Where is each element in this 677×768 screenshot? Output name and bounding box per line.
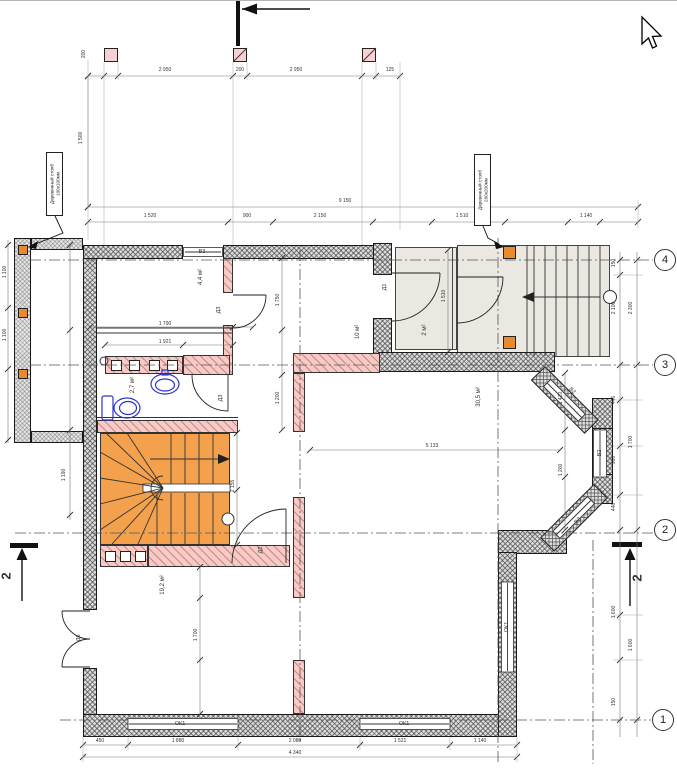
room-area-label: 10 м² [355, 325, 361, 339]
partition-hall-south [293, 353, 380, 373]
window-label-v3: В3 [199, 249, 206, 255]
callout-text: 100х100мм [55, 172, 60, 196]
floor-plan-drawing: 4,4 м² 10 м² 2,7 м² 2 м² 30,5 м² 19,2 м²… [0, 0, 677, 768]
cabinet-box [105, 551, 116, 562]
cabinet-box [167, 360, 178, 371]
entry-post-south [503, 336, 516, 349]
cabinet-box [111, 360, 122, 371]
section-number-right: 2 [630, 574, 645, 581]
dim-label: 1 510 [456, 213, 469, 219]
wall-entry-south [378, 352, 555, 372]
partition-lower-vertical [293, 660, 305, 714]
wall-bottom [83, 714, 517, 737]
plan-linework [0, 0, 677, 768]
cabinet-box [129, 360, 140, 371]
dim-label: 200 [81, 50, 87, 58]
stair-cabinet-row [100, 545, 148, 567]
door-label-d6: Д6 [76, 635, 82, 642]
partition-upper-a [223, 258, 233, 293]
porch-band-bottom [31, 431, 83, 443]
wall-vestibule-west-lower [373, 318, 392, 354]
dim-label: 446 [611, 503, 617, 511]
page-edge-line [0, 0, 677, 1]
dim-label: 900 [243, 213, 251, 219]
cabinet-box [149, 360, 160, 371]
porch-band-vertical [14, 238, 31, 443]
porch-post-2 [18, 308, 28, 318]
grid-label: 4 [662, 254, 668, 266]
window-label-v2-east: В2 [597, 450, 603, 457]
partition-bath-north [183, 355, 230, 375]
wall-top-left [83, 245, 183, 259]
dim-label: 446 [611, 396, 617, 404]
room-area-label: 4,4 м² [198, 269, 204, 285]
grid-bubble-3: 3 [654, 354, 676, 376]
dim-label: 1 190 [61, 469, 67, 482]
wall-left-upper [83, 258, 97, 610]
entry-porch-floor [457, 245, 610, 357]
door-label-d1: Д1 [382, 284, 388, 291]
dim-label: 4 340 [289, 750, 302, 756]
dim-label: 9 150 [339, 198, 352, 204]
dim-label: 200 [236, 67, 244, 73]
section-number-left: 2 [0, 572, 14, 579]
dim-label: 1 200 [275, 392, 281, 405]
post-top-3 [362, 48, 376, 62]
door-d3-bathroom [192, 375, 228, 411]
dim-label: 150 [611, 698, 617, 706]
section-arrow-left [17, 548, 28, 601]
dim-label: 1 510 [441, 290, 447, 303]
cabinet-box [135, 551, 146, 562]
dim-label: 1 100 [2, 266, 8, 279]
entry-post-north [503, 246, 516, 259]
door-label-d3b: Д3 [218, 395, 224, 402]
grid-label: 3 [662, 359, 668, 371]
toilet [102, 396, 140, 420]
wall-top-mid [223, 245, 375, 259]
grid-label: 2 [662, 524, 668, 536]
dim-label: 450 [96, 738, 104, 744]
grid-label: 1 [660, 714, 666, 726]
dim-label: 1 520 [144, 213, 157, 219]
window-label-ok1-b: ОК1 [399, 721, 410, 727]
dim-label: 2 150 [314, 213, 327, 219]
dim-label: 5 133 [426, 443, 439, 449]
window-label-ok1-c: ОК1 [504, 622, 510, 633]
dimension-linework [0, 0, 677, 768]
dim-label: 1 880 [172, 738, 185, 744]
mouse-cursor[interactable] [642, 17, 661, 48]
partition-mid-vertical-b [293, 373, 305, 432]
dim-label: 1 790 [159, 321, 172, 327]
window-v2-lower-diagonal [552, 496, 595, 539]
room-area-label: 2 м² [422, 324, 428, 335]
wall-vestibule-west-upper [373, 243, 392, 275]
dim-label: 1 140 [580, 213, 593, 219]
post-callout-right: Деревянный столб 200х200мм [474, 154, 491, 226]
section-cut-bar-right [612, 542, 642, 547]
section-cut-bar-top [236, 0, 240, 46]
dim-label: 125 [386, 67, 394, 73]
partition-stair-south [148, 545, 290, 567]
post-top-1 [104, 48, 118, 62]
partition-mid-vertical-a [293, 497, 305, 598]
dim-label: 1 750 [275, 294, 281, 307]
partition-stair-north [97, 420, 238, 433]
dim-label: 1 140 [474, 738, 487, 744]
room-area-label: 30,5 м² [476, 387, 482, 406]
callout-text: 200х200мм [483, 178, 488, 202]
dim-label: 2 155 [230, 480, 236, 493]
wall-bay-diagonal-lower [540, 484, 608, 552]
porch-band-top [31, 238, 83, 250]
dim-label: 1 200 [558, 464, 564, 477]
door-d3-upper [233, 295, 266, 328]
dim-label: 1 100 [2, 329, 8, 342]
grid-bubble-1: 1 [652, 709, 674, 731]
dim-label: 1 420 [558, 392, 564, 405]
porch-post-1 [18, 245, 28, 255]
wall-right-lower [498, 552, 517, 737]
section-cut-bar-left [10, 543, 38, 548]
dim-label: 150 [611, 259, 617, 267]
dim-label: 2 950 [159, 67, 172, 73]
door-label-d2: Д2 [258, 547, 264, 554]
dim-label: 2 080 [289, 738, 302, 744]
dim-label: 2 300 [628, 302, 634, 315]
staircase [100, 433, 230, 545]
dim-label: 900 [611, 456, 617, 464]
dim-label: 1 600 [628, 639, 634, 652]
wall-left-lower [83, 668, 97, 720]
section-arrow-top [242, 4, 310, 15]
dim-label: 1 600 [611, 606, 617, 619]
dim-label: 1 500 [78, 132, 84, 145]
room-area-label: 2,7 м² [130, 377, 136, 393]
post-callout-left: Деревянный столб 100х100мм [46, 152, 63, 216]
room-area-label: 19,2 м² [160, 575, 166, 594]
porch-post-3 [18, 369, 28, 379]
dim-label: 2 100 [611, 302, 617, 315]
wall-bay-block-top [592, 398, 613, 431]
dim-label: 2 950 [290, 67, 303, 73]
dim-label: 1 700 [193, 629, 199, 642]
callout-text: Деревянный столб [477, 170, 482, 210]
grid-bubble-2: 2 [654, 519, 676, 541]
window-label-ok1-a: ОК1 [175, 721, 186, 727]
post-top-2 [233, 48, 247, 62]
door-label-d3: Д3 [216, 307, 222, 314]
callout-text: Деревянный столб [49, 164, 54, 204]
bath-cabinet-row [105, 356, 183, 374]
dim-label: 1 921 [159, 339, 172, 345]
window-v2-upper-diagonal [543, 379, 586, 422]
dim-label: 1 700 [628, 436, 634, 449]
grid-bubble-4: 4 [654, 249, 676, 271]
dim-label: 1 521 [394, 738, 407, 744]
cabinet-box [120, 551, 131, 562]
wall-bay-diagonal-upper [531, 366, 599, 434]
